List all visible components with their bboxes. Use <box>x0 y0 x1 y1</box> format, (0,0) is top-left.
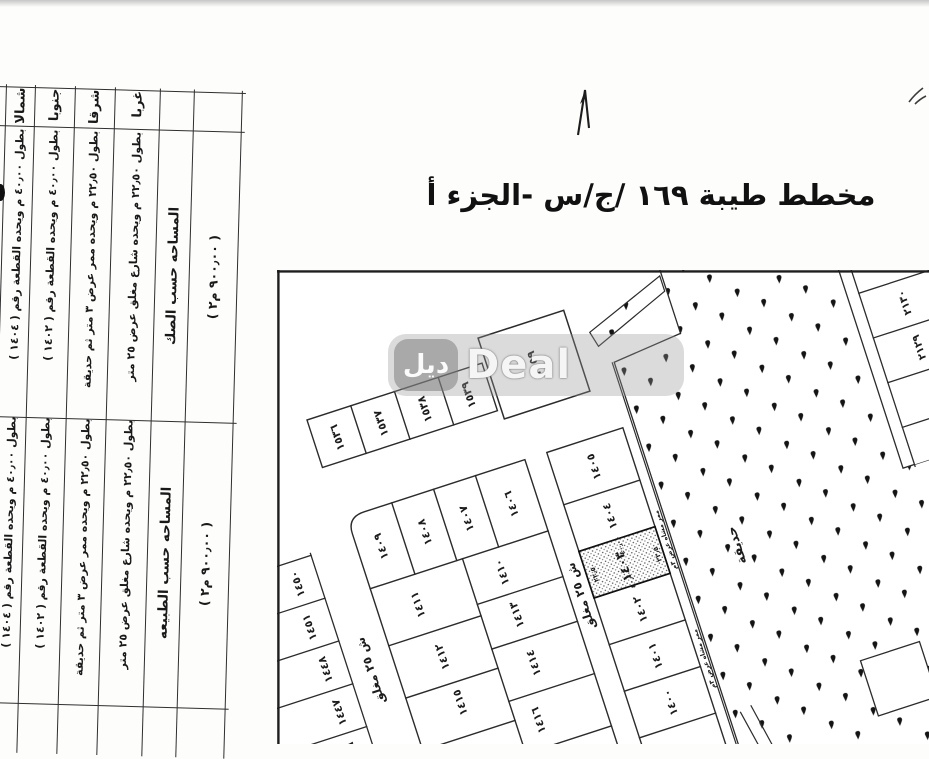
boundaries-table: شمالا جنوبا شرقا غربا بطول ٤٠٫٠٠ م ويحده… <box>0 84 249 759</box>
site-watermark: ديل Deal <box>388 334 684 396</box>
header-west: غربا <box>116 90 160 128</box>
band1-area-value: ( ٩٠٠٫٠٠ م٢ ) <box>187 134 241 421</box>
header-east: شرقا <box>76 89 115 127</box>
band1-west-boundary: بطول ٢٢٫٥٠ م ويحده شارع مغلق عرض ٢٥ متر <box>108 131 159 418</box>
band2-east-boundary: بطول ٢٢٫٥٠ م ويحده ممر عرض ٣ متر ثم حديق… <box>60 418 106 703</box>
band2-west-boundary: بطول ٢٢٫٥٠ م ويحده شارع مغلق عرض ٢٥ متر <box>100 419 151 704</box>
band1-south-boundary: بطول ٤٠٫٠٠ م ويحده القطعة رقم ( ١٤٠٢ ) <box>28 129 74 416</box>
watermark-logo: ديل <box>394 339 458 391</box>
page-title: مخطط طيبة ١٦٩ /ج/س -الجزء أ <box>408 178 894 224</box>
band1-east-boundary: بطول ٢٢٫٥٠ م ويحده ممر عرض ٣ متر ثم حديق… <box>68 130 114 417</box>
scan-top-shadow <box>0 0 929 7</box>
watermark-text: Deal <box>466 342 571 388</box>
header-south: جنوبا <box>36 88 75 126</box>
scanned-deed-page: { "title": "مخطط طيبة ١٦٩ /ج/س -الجزء أ"… <box>0 0 929 744</box>
scan-corner-mark <box>906 82 928 108</box>
band2-south-boundary: بطول ٤٠٫٠٠ م ويحده القطعة رقم ( ١٤٠٢ ) <box>20 417 66 702</box>
header-north: شمالا <box>7 87 35 125</box>
north-arrow-icon <box>570 86 600 138</box>
band2-area-value: ( ٩٠٠٫٠٠ م٢ ) <box>179 421 233 706</box>
